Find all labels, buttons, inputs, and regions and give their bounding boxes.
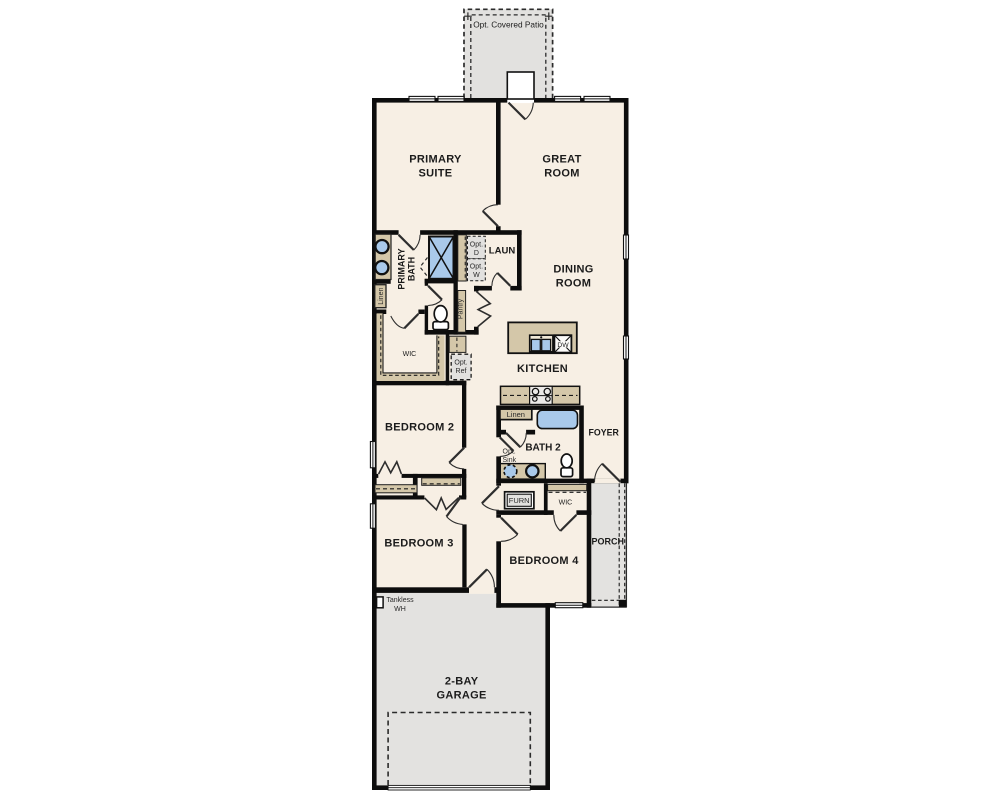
svg-text:Opt.: Opt. bbox=[454, 360, 467, 367]
svg-text:GARAGE: GARAGE bbox=[437, 690, 487, 702]
svg-text:PORCH: PORCH bbox=[592, 537, 625, 547]
svg-text:Linen: Linen bbox=[378, 288, 385, 305]
svg-text:FOYER: FOYER bbox=[589, 428, 620, 438]
svg-text:Tankless: Tankless bbox=[386, 597, 414, 604]
svg-text:2-BAY: 2-BAY bbox=[445, 676, 479, 688]
svg-text:Opt.: Opt. bbox=[470, 242, 483, 249]
svg-text:Pantry: Pantry bbox=[457, 298, 464, 319]
svg-text:KITCHEN: KITCHEN bbox=[517, 363, 568, 375]
svg-text:GREAT: GREAT bbox=[542, 154, 581, 166]
svg-text:WIC: WIC bbox=[403, 351, 417, 358]
svg-text:W: W bbox=[473, 272, 480, 279]
svg-text:PRIMARY: PRIMARY bbox=[397, 248, 407, 289]
svg-text:Ref: Ref bbox=[456, 368, 467, 375]
svg-text:Opt. Covered Patio: Opt. Covered Patio bbox=[473, 20, 544, 30]
svg-text:BEDROOM 4: BEDROOM 4 bbox=[509, 555, 579, 567]
svg-text:ROOM: ROOM bbox=[544, 168, 579, 180]
svg-text:LAUN: LAUN bbox=[489, 246, 516, 257]
svg-text:DW: DW bbox=[557, 342, 569, 349]
svg-text:BEDROOM 2: BEDROOM 2 bbox=[385, 422, 454, 434]
svg-text:BATH: BATH bbox=[407, 257, 417, 281]
svg-text:WH: WH bbox=[394, 606, 406, 613]
svg-text:D: D bbox=[474, 250, 479, 257]
svg-text:BEDROOM 3: BEDROOM 3 bbox=[384, 538, 453, 550]
svg-text:Sink: Sink bbox=[503, 457, 517, 464]
svg-text:SUITE: SUITE bbox=[419, 168, 453, 180]
svg-text:PRIMARY: PRIMARY bbox=[409, 154, 462, 166]
svg-text:DINING: DINING bbox=[553, 264, 593, 276]
svg-text:BATH 2: BATH 2 bbox=[525, 443, 561, 454]
svg-text:FURN: FURN bbox=[509, 496, 530, 505]
svg-text:Linen: Linen bbox=[507, 410, 525, 419]
svg-text:Opt.: Opt. bbox=[470, 264, 483, 271]
svg-text:ROOM: ROOM bbox=[556, 278, 591, 290]
svg-text:WIC: WIC bbox=[559, 500, 573, 507]
svg-text:Opt.: Opt. bbox=[503, 449, 516, 456]
